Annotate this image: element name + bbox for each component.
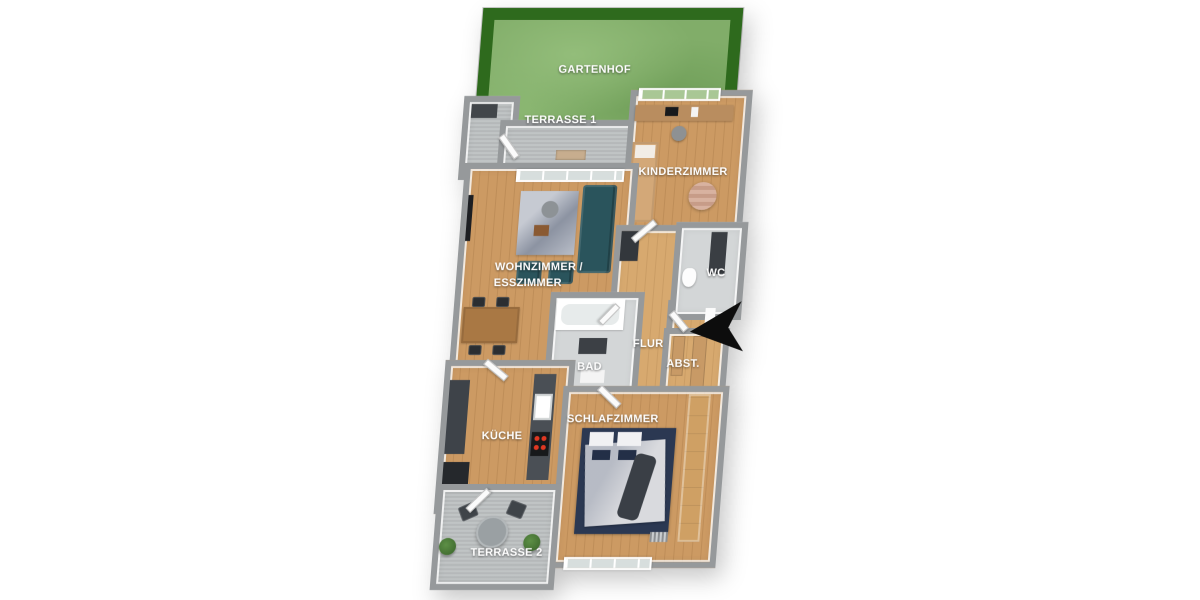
floor-plan-canvas: GARTENHOF TERRASSE 1 KINDERZIMMER WOHNZI… — [0, 0, 1200, 600]
gartenhof-label: GARTENHOF — [558, 64, 630, 76]
storage-cabinet — [471, 104, 498, 118]
desk — [634, 105, 733, 121]
terrasse-2-label: TERRASSE 2 — [470, 547, 542, 559]
dining-chair — [472, 297, 486, 307]
burner — [534, 436, 539, 441]
desk-chair — [671, 126, 687, 141]
shelf — [670, 336, 685, 376]
wc-label: WC — [707, 267, 726, 279]
burner — [534, 445, 539, 450]
dining-chair — [496, 297, 510, 307]
burner — [541, 436, 546, 441]
apartment-floor-plan: GARTENHOF TERRASSE 1 KINDERZIMMER WOHNZI… — [405, 0, 802, 600]
schlafzimmer-door — [597, 385, 621, 409]
dining-chair — [492, 345, 506, 355]
wohnzimmer-label-line1: WOHNZIMMER / — [495, 261, 583, 273]
room-terrasse-2 — [430, 484, 562, 590]
bad-label: BAD — [577, 361, 602, 373]
papers — [691, 107, 699, 117]
terrace-table — [475, 516, 510, 548]
bath-vanity — [578, 338, 607, 354]
kitchen-counter-right — [526, 374, 556, 480]
coffee-table — [533, 225, 549, 236]
wohnzimmer-label-line2: ESSZIMMER — [494, 277, 562, 289]
kueche-label: KÜCHE — [482, 430, 523, 442]
kinderzimmer-window — [638, 88, 721, 101]
toilet — [681, 268, 696, 287]
accent-pillow — [592, 450, 611, 460]
entrance-arrow-icon — [687, 297, 745, 361]
doormat — [649, 532, 668, 542]
flur-label: FLUR — [633, 338, 664, 350]
terrace-storage-door — [498, 133, 519, 159]
curtain — [555, 150, 586, 160]
kitchen-counter-left — [444, 380, 470, 454]
burner — [541, 445, 546, 450]
double-bed — [574, 428, 676, 534]
pillow — [635, 145, 656, 158]
dining-table — [461, 307, 520, 343]
terrasse-1-label: TERRASSE 1 — [525, 114, 597, 126]
terrace-sliding-door-window — [516, 169, 625, 182]
tv — [465, 195, 474, 241]
wardrobe — [677, 394, 711, 542]
schlafzimmer-label: SCHLAFZIMMER — [567, 413, 659, 425]
laptop — [665, 107, 679, 116]
sink — [533, 394, 553, 420]
terrace-chair — [506, 500, 528, 520]
kueche-door — [483, 359, 508, 382]
kinderzimmer-label: KINDERZIMMER — [638, 166, 727, 178]
schlafzimmer-window — [563, 557, 652, 570]
ottoman — [687, 182, 717, 210]
stove — [530, 432, 550, 456]
pillow — [617, 432, 642, 446]
sofa — [577, 185, 618, 273]
dining-chair — [468, 345, 482, 355]
potted-plant — [438, 538, 456, 555]
pillow — [589, 432, 614, 446]
